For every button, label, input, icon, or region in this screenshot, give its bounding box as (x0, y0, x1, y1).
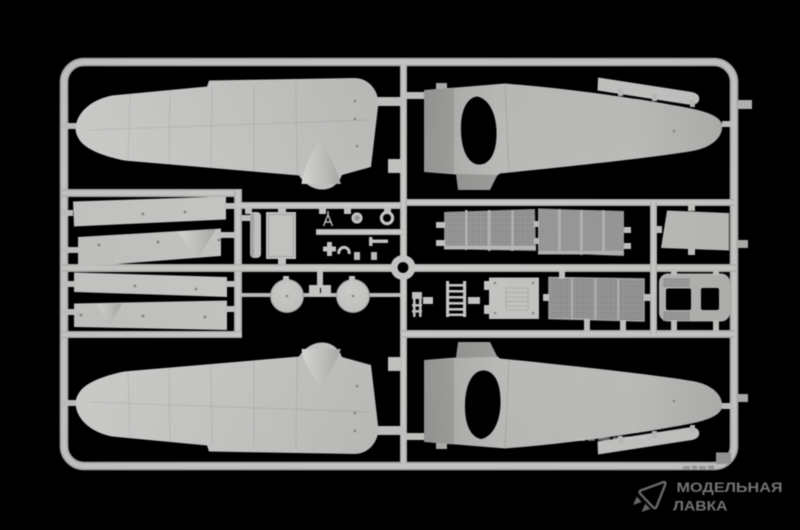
svg-text:МОДЕЛЬНАЯ: МОДЕЛЬНАЯ (677, 480, 783, 495)
svg-text:ЛАВКА: ЛАВКА (673, 498, 728, 513)
